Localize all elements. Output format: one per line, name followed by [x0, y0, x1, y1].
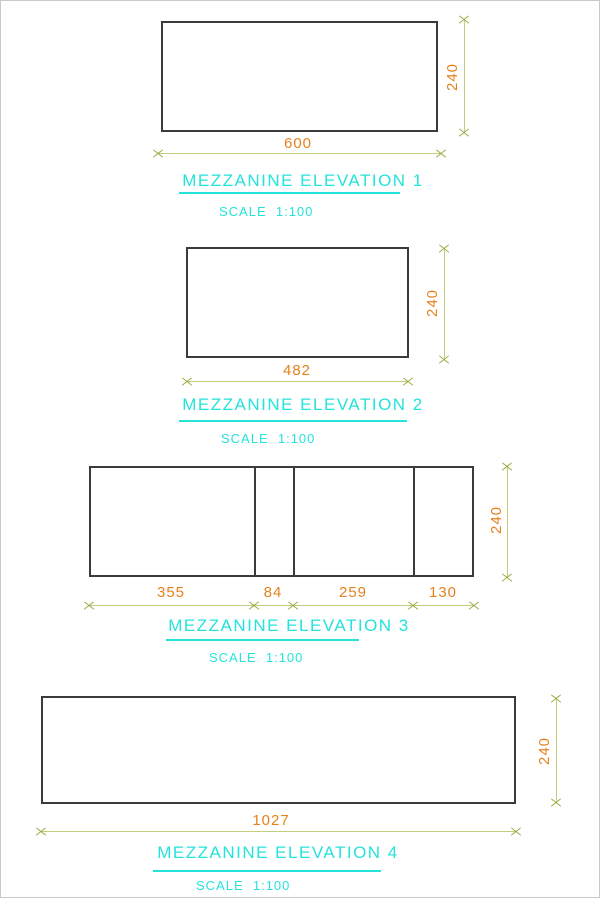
elevation-2-height-dim-line [444, 248, 445, 359]
elevation-4-title-underline [153, 870, 381, 872]
elevation-2-height-label: 240 [424, 281, 442, 325]
elevation-3-segment-label: 130 [403, 585, 483, 601]
elevation-2-scale-label: SCALE 1:100 [221, 431, 315, 446]
dim-tick [83, 599, 95, 611]
elevation-4-width-label: 1027 [231, 813, 311, 829]
elevation-1-width-label: 600 [258, 136, 338, 152]
elevation-1-title-underline [179, 192, 400, 194]
elevation-1-width-dim-line [158, 153, 441, 154]
dim-tick [510, 825, 522, 837]
elevation-4-height-label: 240 [536, 729, 554, 773]
elevation-3-title: MEZZANINE ELEVATION 3 [139, 616, 439, 635]
elevation-3-segment-label: 259 [313, 585, 393, 601]
elevation-2-title: MEZZANINE ELEVATION 2 [153, 395, 453, 414]
dim-tick [550, 692, 562, 704]
dim-tick [501, 460, 513, 472]
elevation-2-width-dim-line [187, 381, 408, 382]
dim-tick [152, 147, 164, 159]
dim-tick [35, 825, 47, 837]
elevation-3-divider-3 [413, 466, 415, 577]
elevation-1-height-dim-line [464, 19, 465, 132]
elevation-2-title-underline [179, 420, 407, 422]
dim-tick [458, 13, 470, 25]
elevation-4-title: MEZZANINE ELEVATION 4 [128, 843, 428, 862]
dim-tick [438, 242, 450, 254]
elevation-1-height-label: 240 [444, 55, 462, 99]
elevation-1-outline [161, 21, 438, 132]
elevation-2-outline [186, 247, 409, 358]
elevation-4-height-dim-line [556, 698, 557, 802]
elevation-3-outline [89, 466, 474, 577]
drawing-sheet: 600 240 MEZZANINE ELEVATION 1 SCALE 1:10… [0, 0, 600, 898]
elevation-4-outline [41, 696, 516, 804]
elevation-3-height-dim-line [507, 466, 508, 577]
elevation-4-width-dim-line [41, 831, 516, 832]
dim-tick [402, 375, 414, 387]
dim-tick [501, 571, 513, 583]
elevation-3-segment-label: 84 [233, 585, 313, 601]
dim-tick [181, 375, 193, 387]
elevation-3-segment-label: 355 [131, 585, 211, 601]
dim-tick [550, 796, 562, 808]
elevation-3-height-label: 240 [488, 498, 506, 542]
elevation-3-divider-1 [254, 466, 256, 577]
dim-tick [458, 126, 470, 138]
elevation-4-scale-label: SCALE 1:100 [196, 878, 290, 893]
elevation-3-title-underline [166, 639, 359, 641]
elevation-3-divider-2 [293, 466, 295, 577]
elevation-1-title: MEZZANINE ELEVATION 1 [153, 171, 453, 190]
elevation-3-scale-label: SCALE 1:100 [209, 650, 303, 665]
elevation-1-scale-label: SCALE 1:100 [219, 204, 313, 219]
elevation-2-width-label: 482 [257, 363, 337, 379]
dim-tick [438, 353, 450, 365]
dim-tick [435, 147, 447, 159]
